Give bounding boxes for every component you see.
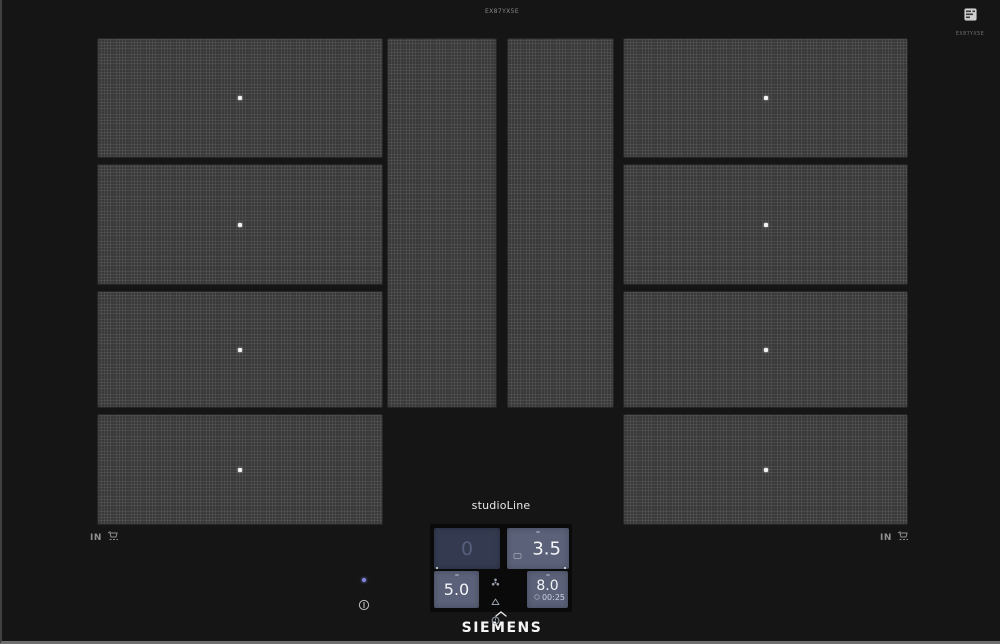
cooking-zone-left-4 [97,414,383,525]
info-icon[interactable] [358,596,370,615]
panel-icon-column [483,572,519,606]
display-top-left-zone[interactable]: 0 [434,528,500,569]
cooking-zone-left-3 [97,291,383,408]
energy-label-block: EX87YX5E [950,6,990,37]
power-level-value: 0 [461,538,473,560]
induction-pan-icon [897,531,910,544]
brand-logo: SIEMENS [402,620,602,636]
zone-marker-dot [764,223,768,227]
timer-value: 00:25 [542,593,565,603]
cooking-zone-center-strip-2 [507,38,614,408]
induction-marking-left: IN [90,531,120,544]
energy-label-icon [964,6,977,25]
zone-marker-dot [764,468,768,472]
zone-marker-dot [238,468,242,472]
display-bottom-left-zone[interactable]: 5.0 [434,571,479,608]
induction-pan-icon [107,531,120,544]
zone-marker-dot [764,96,768,100]
cooking-zone-right-1 [623,38,908,158]
touch-control-panel: 0 3.5 5.0 [430,524,572,612]
induction-marking-right: IN [880,531,910,544]
power-level-value: 5.0 [444,580,469,599]
induction-label: IN [90,533,102,543]
induction-cooktop: EX87YX5E EX87YX5E IN [0,0,1000,644]
pan-detect-icon [513,544,522,565]
induction-label: IN [880,533,892,543]
hood-fan-icon [491,572,500,591]
zone-tick [455,574,459,576]
series-label: studioLine [430,499,572,512]
panel-corner-dot-left [436,567,438,569]
cooking-zone-center-strip-1 [387,38,497,408]
zone-tick [536,531,540,533]
cooking-zone-right-2 [623,164,908,285]
cooking-zone-left-2 [97,164,383,285]
zone-marker-dot [238,96,242,100]
zone-marker-dot [238,223,242,227]
display-bottom-right-zone[interactable]: 8.0 00:25 [527,571,568,608]
energy-code-text: EX87YX5E [950,31,990,37]
timer-small-icon [534,593,540,603]
zone-tick [546,574,550,576]
zone-marker-dot [238,348,242,352]
panel-corner-dot-right [564,567,566,569]
model-number-label: EX87YX5E [442,8,562,15]
power-level-value: 8.0 [536,579,558,593]
power-led-indicator [362,578,366,582]
power-level-value: 3.5 [532,538,561,559]
cooking-zone-right-3 [623,291,908,408]
cooking-zone-right-4 [623,414,908,525]
display-top-right-zone[interactable]: 3.5 [507,528,569,569]
zone-marker-dot [764,348,768,352]
chevron-up-icon[interactable] [495,602,507,621]
cooking-zone-left-1 [97,38,383,158]
